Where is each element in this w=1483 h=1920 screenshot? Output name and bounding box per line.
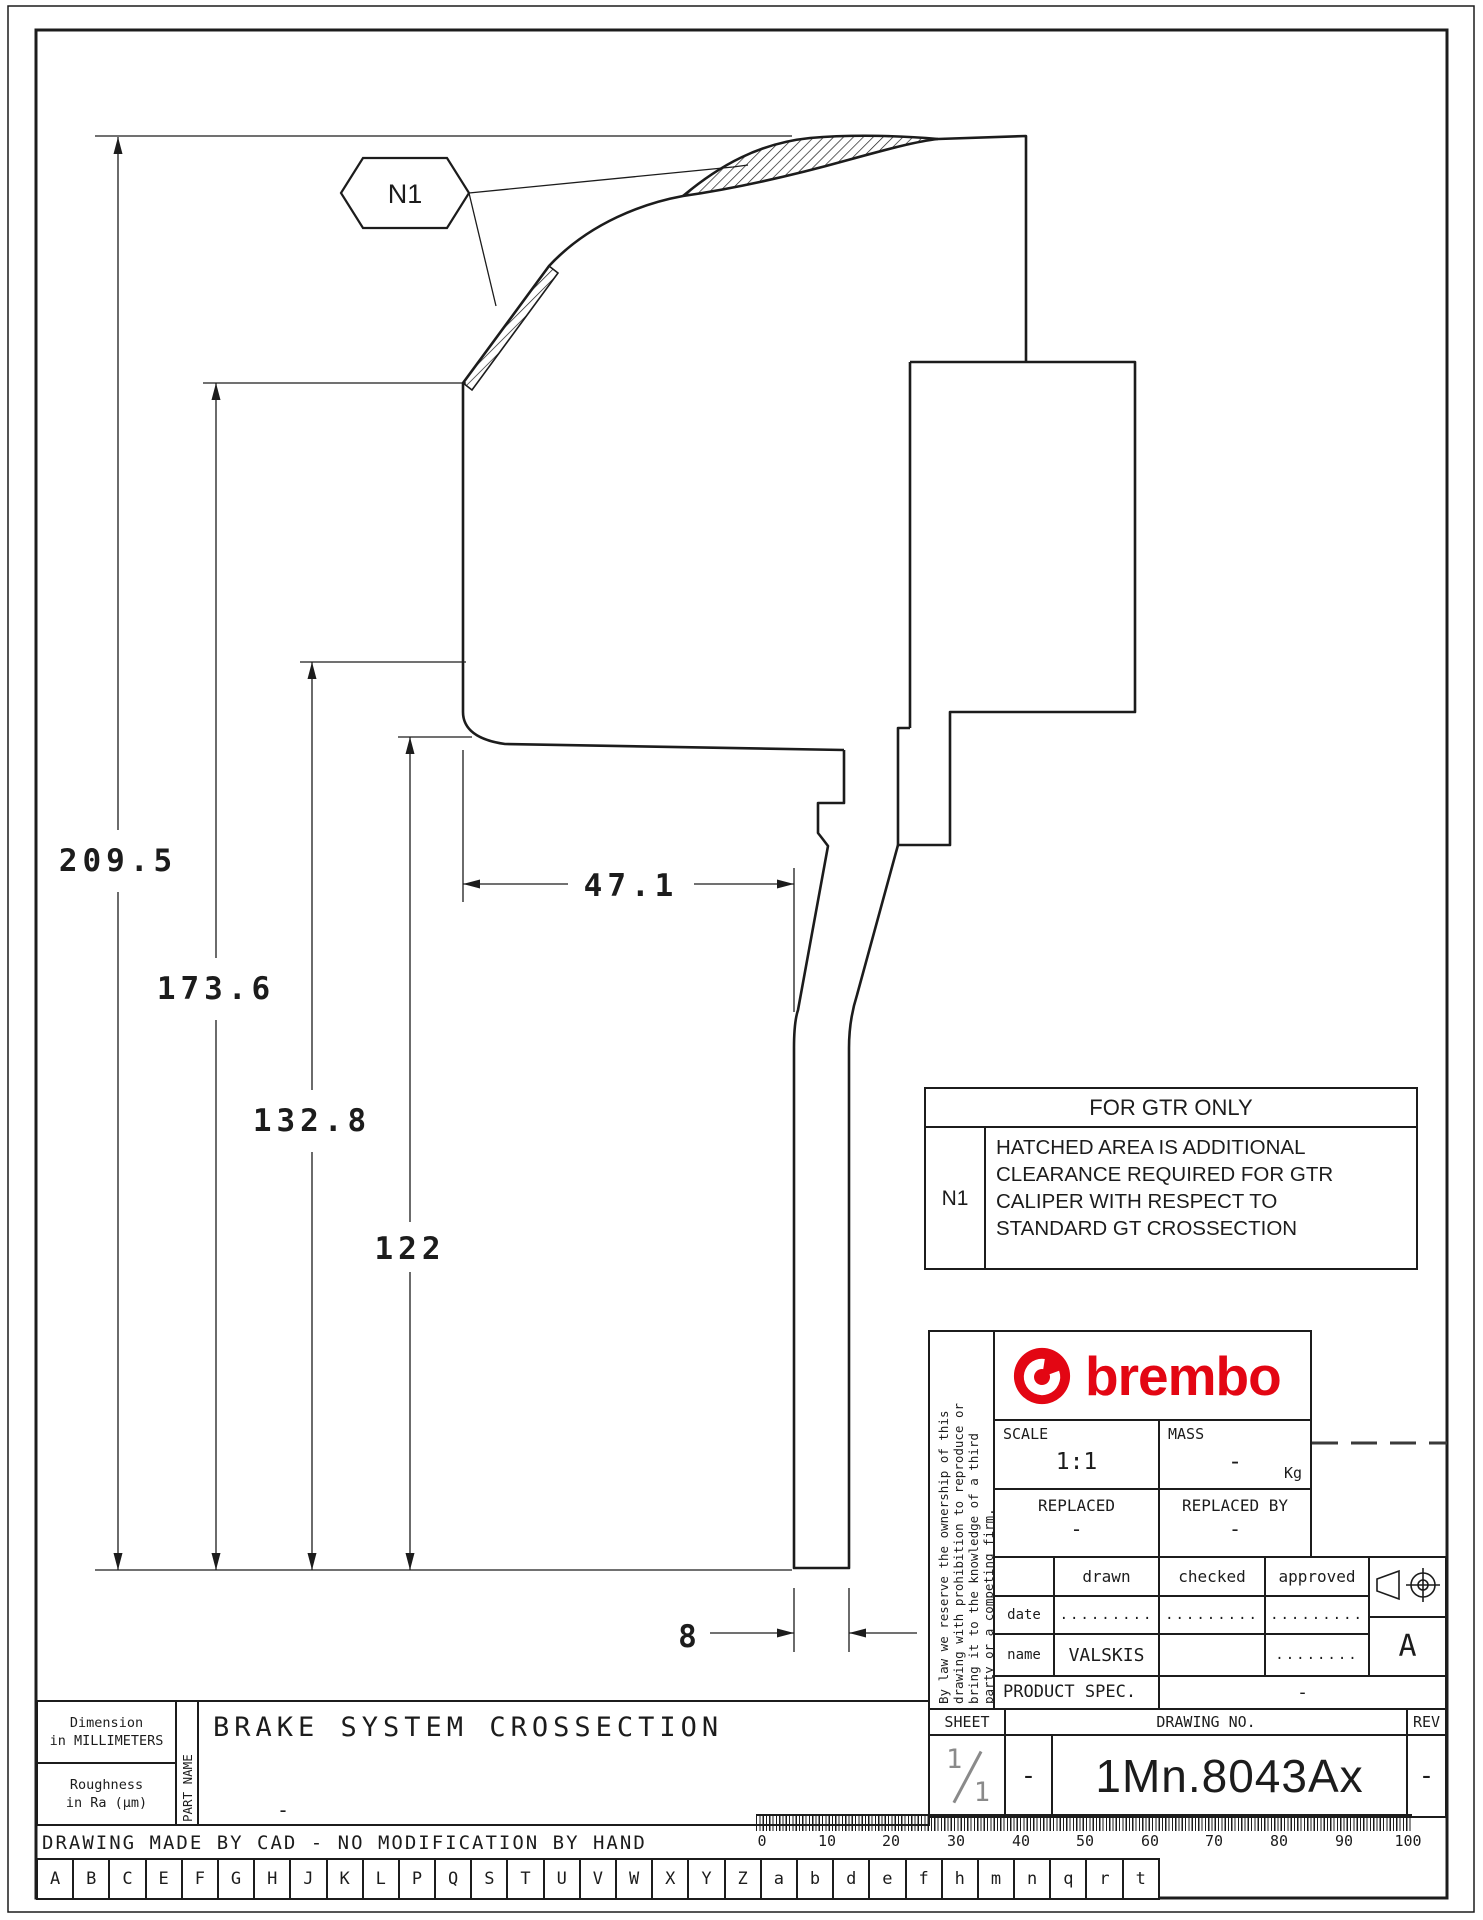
- date-checked-value: .........: [1158, 1595, 1266, 1635]
- projection-symbol-cell: [1368, 1556, 1447, 1618]
- replaced-by-label: REPLACED BY: [1160, 1490, 1310, 1515]
- copyright-disclaimer-text: By law we reserve the ownership of this …: [936, 1334, 996, 1704]
- date-drawn-value: .........: [1053, 1595, 1160, 1635]
- dim-label-inner-height: 132.8: [253, 1103, 371, 1139]
- product-spec-label: PRODUCT SPEC.: [993, 1675, 1160, 1710]
- grid-letter-cell: V: [581, 1860, 617, 1898]
- brand-wordmark: brembo: [1085, 1344, 1281, 1408]
- part-name-label-strip: PART NAME: [175, 1700, 199, 1826]
- grid-letter-cell: t: [1124, 1860, 1158, 1898]
- grid-letter-cell: W: [617, 1860, 653, 1898]
- grid-letter-cell: Z: [726, 1860, 762, 1898]
- gtr-note-id: N1: [926, 1128, 986, 1270]
- grid-letter-cell: e: [870, 1860, 906, 1898]
- dim-label-overall-height: 209.5: [59, 843, 177, 879]
- product-spec-value: -: [1158, 1675, 1447, 1710]
- grid-letter-cell: C: [110, 1860, 146, 1898]
- sheet-denominator: 1: [974, 1777, 990, 1808]
- scale-value: 1:1: [995, 1449, 1158, 1475]
- third-angle-projection-icon: [1373, 1564, 1443, 1610]
- scale-label: SCALE: [995, 1421, 1158, 1443]
- ruler-number: 0: [740, 1832, 784, 1850]
- roughness-note-line: in Ra (μm): [66, 1794, 147, 1812]
- grid-letter-cell: F: [183, 1860, 219, 1898]
- dim-label-disc-height: 122: [375, 1231, 446, 1267]
- replaced-by-value: -: [1160, 1517, 1310, 1541]
- disclaimer-line: By law we reserve the ownership of this: [936, 1334, 951, 1704]
- grid-letter-cell: G: [219, 1860, 255, 1898]
- ruler-number: 60: [1128, 1832, 1172, 1850]
- checked-column-header: checked: [1158, 1556, 1266, 1597]
- gtr-note-text: HATCHED AREA IS ADDITIONAL CLEARANCE REQ…: [986, 1128, 1416, 1270]
- ruler-number: 100: [1386, 1832, 1430, 1850]
- grid-letter-cell: q: [1051, 1860, 1087, 1898]
- ruler-number: 80: [1257, 1832, 1301, 1850]
- gtr-note-line: CLEARANCE REQUIRED FOR GTR: [996, 1161, 1416, 1188]
- grid-letter-cell: m: [979, 1860, 1015, 1898]
- gtr-note-line: CALIPER WITH RESPECT TO: [996, 1188, 1416, 1215]
- ruler-number: 20: [869, 1832, 913, 1850]
- dim-label-disc-thickness: 8: [678, 1619, 702, 1655]
- replaced-by-cell: REPLACED BY -: [1158, 1488, 1312, 1558]
- drawing-no-header: DRAWING NO.: [1004, 1708, 1408, 1736]
- drawn-column-header: drawn: [1053, 1556, 1160, 1597]
- ruler-number: 70: [1192, 1832, 1236, 1850]
- grid-letter-cell: K: [328, 1860, 364, 1898]
- approved-column-header: approved: [1264, 1556, 1370, 1597]
- grid-letter-cell: d: [834, 1860, 870, 1898]
- scale-cell: SCALE 1:1: [993, 1419, 1160, 1490]
- ruler-tick-comb: [756, 1814, 1412, 1831]
- gtr-note-line: STANDARD GT CROSSECTION: [996, 1215, 1416, 1242]
- gtr-note-table: FOR GTR ONLY N1 HATCHED AREA IS ADDITION…: [924, 1087, 1418, 1270]
- part-name-cell: BRAKE SYSTEM CROSSECTION -: [197, 1700, 930, 1826]
- disclaimer-line: drawing with prohibition to reproduce or: [951, 1334, 966, 1704]
- grid-letter-cell: H: [255, 1860, 291, 1898]
- sheet-dash-cell: -: [1004, 1734, 1053, 1818]
- date-row-label: date: [993, 1595, 1055, 1635]
- grid-letter-cell: b: [798, 1860, 834, 1898]
- copyright-disclaimer-strip: By law we reserve the ownership of this …: [928, 1330, 995, 1710]
- grid-letter-cell: P: [400, 1860, 436, 1898]
- grid-letter-cell: a: [762, 1860, 798, 1898]
- hatch-upper-sliver: [683, 136, 938, 196]
- name-drawn-value: VALSKIS: [1053, 1633, 1160, 1677]
- cad-note: DRAWING MADE BY CAD - NO MODIFICATION BY…: [42, 1832, 647, 1854]
- brand-logo-cell: brembo: [993, 1330, 1312, 1421]
- approvals-corner-cell: [993, 1556, 1055, 1597]
- rev-value: -: [1406, 1734, 1447, 1818]
- grid-letter-cell: S: [472, 1860, 508, 1898]
- sheet-number-cell: 1 1: [928, 1734, 1006, 1818]
- grid-letter-cell: Q: [436, 1860, 472, 1898]
- n1-flag-label: N1: [388, 179, 423, 209]
- roughness-note-line: Roughness: [70, 1776, 143, 1794]
- grid-letter-row: A B C E F G H J K L P Q S T U V W X Y Z …: [36, 1858, 1160, 1900]
- rev-header: REV: [1406, 1708, 1447, 1736]
- ruler-number: 40: [999, 1832, 1043, 1850]
- replaced-label: REPLACED: [995, 1490, 1158, 1515]
- hatched-clearance-areas: [463, 136, 938, 390]
- gtr-table-title: FOR GTR ONLY: [926, 1089, 1416, 1128]
- name-row-label: name: [993, 1633, 1055, 1677]
- grid-letter-cell: T: [508, 1860, 544, 1898]
- date-approved-value: .........: [1264, 1595, 1370, 1635]
- part-name-label: PART NAME: [180, 1706, 198, 1822]
- hatch-left-band: [463, 266, 558, 390]
- part-name-subtitle: -: [277, 1798, 289, 1822]
- grid-letter-cell: h: [943, 1860, 979, 1898]
- grid-letter-cell: Y: [689, 1860, 725, 1898]
- disclaimer-line: bring it to the knowledge of a third: [966, 1334, 981, 1704]
- grid-letter-cell: X: [653, 1860, 689, 1898]
- gtr-note-line: HATCHED AREA IS ADDITIONAL: [996, 1134, 1416, 1161]
- format-letter-cell: A: [1368, 1616, 1447, 1677]
- grid-letter-cell: r: [1087, 1860, 1123, 1898]
- dim-label-mid-height: 173.6: [157, 971, 275, 1007]
- grid-letter-cell: n: [1015, 1860, 1051, 1898]
- part-name: BRAKE SYSTEM CROSSECTION: [213, 1712, 928, 1743]
- ruler-number: 90: [1322, 1832, 1366, 1850]
- brembo-logo-icon: [1011, 1345, 1073, 1407]
- ruler-number: 50: [1063, 1832, 1107, 1850]
- extension-lines: [95, 136, 849, 1652]
- mass-unit: Kg: [1284, 1464, 1302, 1482]
- roughness-note: Roughness in Ra (μm): [36, 1762, 177, 1826]
- dim-label-offset-width: 47.1: [584, 868, 679, 904]
- mass-cell: MASS - Kg: [1158, 1419, 1312, 1490]
- mass-label: MASS: [1160, 1421, 1310, 1443]
- grid-letter-cell: J: [291, 1860, 327, 1898]
- grid-letter-cell: B: [74, 1860, 110, 1898]
- grid-letter-cell: U: [545, 1860, 581, 1898]
- drawing-sheet: { "drawing": { "note_tag": "N1", "dimens…: [0, 0, 1483, 1920]
- ruler-number: 30: [934, 1832, 978, 1850]
- grid-letter-cell: E: [147, 1860, 183, 1898]
- sheet-header: SHEET: [928, 1708, 1006, 1736]
- grid-letter-cell: L: [364, 1860, 400, 1898]
- name-approved-value: ........: [1264, 1633, 1370, 1677]
- dimension-note-line: in MILLIMETERS: [50, 1732, 164, 1750]
- grid-letter-cell: A: [38, 1860, 74, 1898]
- replaced-cell: REPLACED -: [993, 1488, 1160, 1558]
- replaced-value: -: [995, 1517, 1158, 1541]
- ruler-number: 10: [805, 1832, 849, 1850]
- name-checked-value: [1158, 1633, 1266, 1677]
- dimension-note-line: Dimension: [70, 1714, 143, 1732]
- dimension-units-note: Dimension in MILLIMETERS: [36, 1700, 177, 1764]
- grid-letter-cell: f: [907, 1860, 943, 1898]
- sheet-numerator: 1: [946, 1744, 962, 1775]
- drawing-number: 1Mn.8043Ax: [1051, 1734, 1408, 1818]
